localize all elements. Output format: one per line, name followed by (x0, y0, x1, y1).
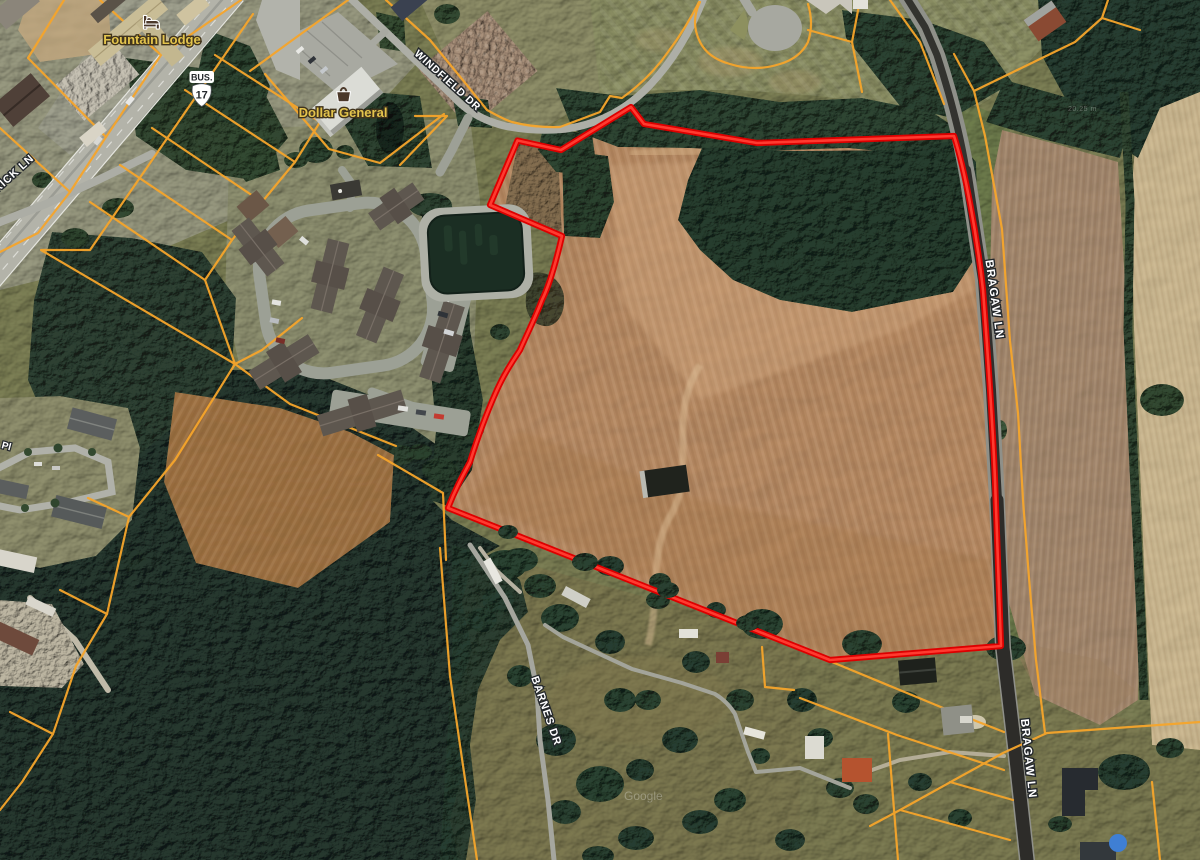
svg-text:Dollar General: Dollar General (299, 105, 388, 120)
svg-text:17: 17 (196, 90, 208, 102)
svg-text:20.25 m: 20.25 m (1068, 106, 1097, 113)
svg-text:Fountain Lodge: Fountain Lodge (103, 32, 200, 47)
svg-text:BUS.: BUS. (191, 73, 213, 83)
svg-text:Google: Google (624, 789, 663, 803)
